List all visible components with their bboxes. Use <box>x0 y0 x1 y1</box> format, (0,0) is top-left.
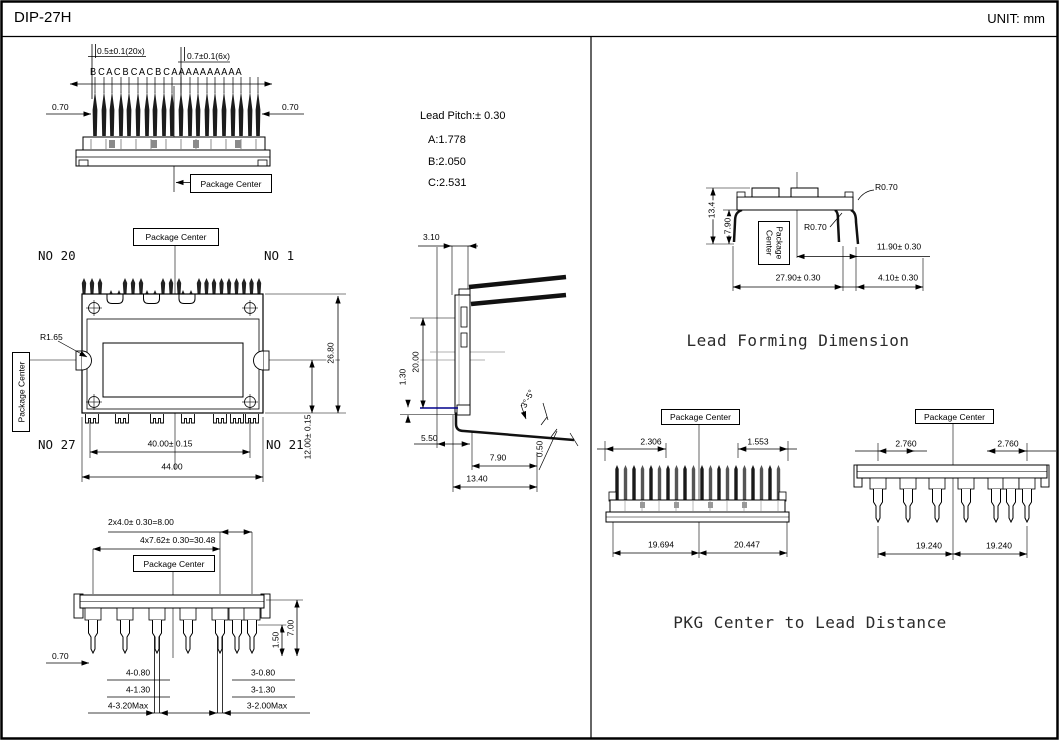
dim-lf-790: 7.90 <box>723 217 732 236</box>
dim-070: 0.70 <box>52 652 69 661</box>
dim-radius-r165: R1.65 <box>40 333 63 342</box>
dim-790: 7.90 <box>490 453 507 462</box>
dim-body-width: 44.00 <box>161 462 182 471</box>
dim-tip-width-6x: 0.7±0.1(6x) <box>187 52 230 61</box>
dim-050: 0.50 <box>535 441 544 458</box>
dim-end-lead-left: 0.70 <box>52 103 69 112</box>
dim-1340: 13.40 <box>466 474 487 483</box>
drawing-sheet: DIP-27H UNIT: mm B C A C B C A C B C A A… <box>0 0 1059 740</box>
package-center-callout: Package Center <box>758 221 790 265</box>
dim-700: 7.00 <box>286 619 295 638</box>
pin-no-20-label: NO 20 <box>38 248 76 263</box>
dim-standoff: 1.30 <box>398 368 407 387</box>
dim-row-3-080: 3-0.80 <box>251 668 275 677</box>
dim-2306: 2.306 <box>640 437 661 446</box>
lead-pitch-a: A:1.778 <box>428 134 466 146</box>
lead-forming-title: Lead Forming Dimension <box>687 331 910 350</box>
dim-20447: 20.447 <box>734 540 760 549</box>
package-center-callout: Package Center <box>661 409 740 425</box>
dim-2760-right: 2.760 <box>997 439 1018 448</box>
dim-134: 13.4 <box>707 201 716 220</box>
dim-550: 5.50 <box>421 434 438 443</box>
dim-2760-left: 2.760 <box>895 439 916 448</box>
dim-r070-mid: R0.70 <box>804 223 827 232</box>
dim-row-4-320max: 4-3.20Max <box>108 701 148 710</box>
dim-1190: 11.90± 0.30 <box>877 242 921 251</box>
dim-150: 1.50 <box>271 631 280 650</box>
dim-19240-right: 19.240 <box>986 541 1012 550</box>
dim-end-lead-right: 0.70 <box>282 103 299 112</box>
dim-row-4-080: 4-0.80 <box>126 668 150 677</box>
dim-r070-top: R0.70 <box>875 183 898 192</box>
dim-pin-length: 20.00 <box>411 350 420 373</box>
dim-pitch-4x: 4x7.62± 0.30=30.48 <box>140 536 215 545</box>
dim-1553: 1.553 <box>747 437 768 446</box>
lead-pitch-c: C:2.531 <box>428 177 467 189</box>
pkg-center-right-drawing <box>854 422 1056 560</box>
dim-body-height: 26.80 <box>326 341 335 364</box>
lead-pitch-b: B:2.050 <box>428 156 466 168</box>
dim-19240-left: 19.240 <box>916 541 942 550</box>
package-center-callout: Package Center <box>133 228 219 246</box>
dim-lead-span: 40.00± 0.15 <box>148 439 193 448</box>
pin-no-27-label: NO 27 <box>38 437 76 452</box>
dim-19694: 19.694 <box>648 540 674 549</box>
pin-no-21-label: NO 21 <box>266 437 304 452</box>
unit-label: UNIT: mm <box>987 11 1045 26</box>
package-center-side-text: Package Center <box>16 362 26 423</box>
pkg-center-title: PKG Center to Lead Distance <box>673 613 947 632</box>
package-center-callout: Package Center <box>915 409 994 424</box>
dim-lower-height: 12.00± 0.15 <box>303 415 312 460</box>
lead-pitch-title: Lead Pitch:± 0.30 <box>420 110 506 122</box>
dim-tip-width-20x: 0.5±0.1(20x) <box>97 47 145 56</box>
dim-body-thickness: 3.10 <box>423 233 440 242</box>
dim-2790: 27.90± 0.30 <box>776 273 821 282</box>
package-center-callout: Package Center <box>133 555 215 572</box>
dim-row-4-130: 4-1.30 <box>126 685 150 694</box>
dim-pitch-2x: 2x4.0± 0.30=8.00 <box>108 518 174 527</box>
dim-410: 4.10± 0.30 <box>878 273 918 282</box>
pin-no-1-label: NO 1 <box>264 248 294 263</box>
pin-sequence-labels: B C A C B C A C B C A A A A A A A A A A <box>90 67 241 78</box>
dim-row-3-130: 3-1.30 <box>251 685 275 694</box>
package-center-side-callout: Package Center <box>12 352 30 432</box>
package-center-text: Package Center <box>764 226 784 259</box>
page-title: DIP-27H <box>14 9 72 26</box>
dim-row-3-200max: 3-2.00Max <box>247 701 287 710</box>
package-center-callout: Package Center <box>190 174 272 193</box>
